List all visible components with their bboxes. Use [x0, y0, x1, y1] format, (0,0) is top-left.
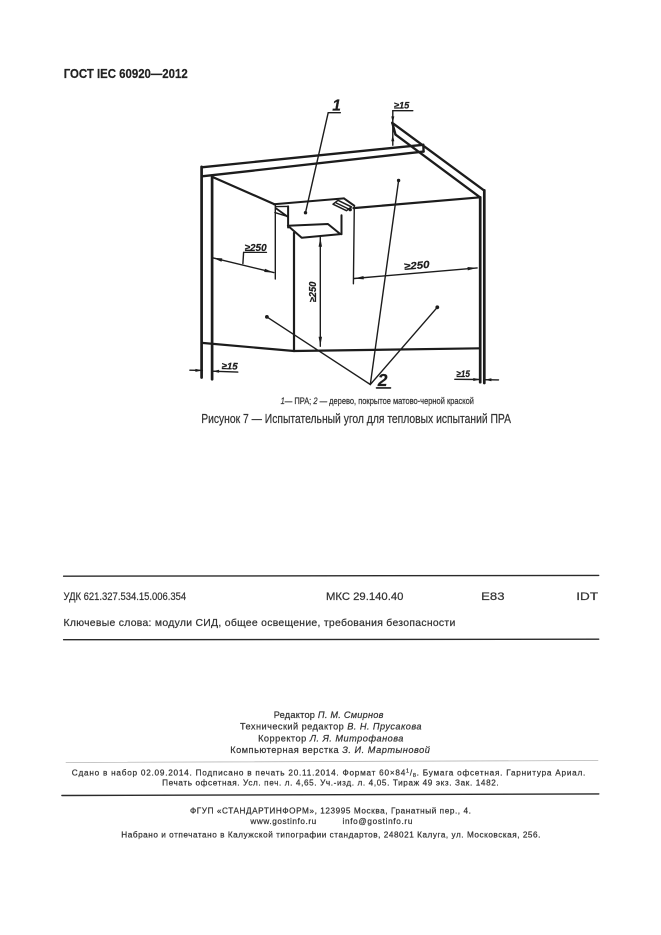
svg-text:Корректор Л. Я. Митрофанова: Корректор Л. Я. Митрофанова [258, 733, 403, 743]
svg-text:Компьютерная верстка З. И. Мар: Компьютерная верстка З. И. Мартыновой [230, 745, 430, 755]
svg-text:ГОСТ IEC 60920—2012: ГОСТ IEC 60920—2012 [64, 67, 188, 81]
svg-text:≥250: ≥250 [308, 281, 319, 302]
svg-text:МКС 29.140.40: МКС 29.140.40 [326, 591, 403, 603]
svg-text:≥250: ≥250 [245, 243, 267, 254]
svg-text:info@gostinfo.ru: info@gostinfo.ru [343, 817, 413, 826]
svg-text:1— ПРА; 2 — дерево, покрытое м: 1— ПРА; 2 — дерево, покрытое матово-черн… [281, 396, 474, 406]
svg-text:www.gostinfo.ru: www.gostinfo.ru [249, 817, 316, 826]
svg-text:2: 2 [377, 370, 388, 390]
svg-text:Технический редактор В. Н. Пру: Технический редактор В. Н. Прусакова [240, 722, 422, 732]
svg-text:Е83: Е83 [481, 591, 504, 603]
svg-text:≥15: ≥15 [456, 369, 470, 380]
svg-text:ФГУП «СТАНДАРТИНФОРМ», 123995: ФГУП «СТАНДАРТИНФОРМ», 123995 Москва, Гр… [190, 806, 471, 815]
svg-text:1: 1 [332, 98, 341, 115]
svg-text:Печать офсетная. Усл. печ. л.: Печать офсетная. Усл. печ. л. 4,65. Уч.-… [162, 779, 499, 788]
svg-text:≥15: ≥15 [394, 101, 410, 112]
svg-text:≥15: ≥15 [221, 361, 238, 373]
svg-text:≥250: ≥250 [404, 260, 431, 273]
svg-text:Ключевые слова: модули СИД, об: Ключевые слова: модули СИД, общее освеще… [64, 617, 456, 629]
svg-text:Рисунок 7 — Испытательный угол: Рисунок 7 — Испытательный угол для тепло… [201, 411, 511, 426]
svg-text:УДК 621.327.534.15.006.354: УДК 621.327.534.15.006.354 [64, 591, 187, 603]
svg-text:Набрано и отпечатано в Калужск: Набрано и отпечатано в Калужской типогра… [121, 831, 540, 840]
svg-text:Сдано в набор 02.09.2014. Подп: Сдано в набор 02.09.2014. Подписано в пе… [72, 768, 586, 779]
svg-text:Редактор П. М. Смирнов: Редактор П. М. Смирнов [274, 710, 384, 720]
svg-text:IDT: IDT [576, 591, 598, 603]
